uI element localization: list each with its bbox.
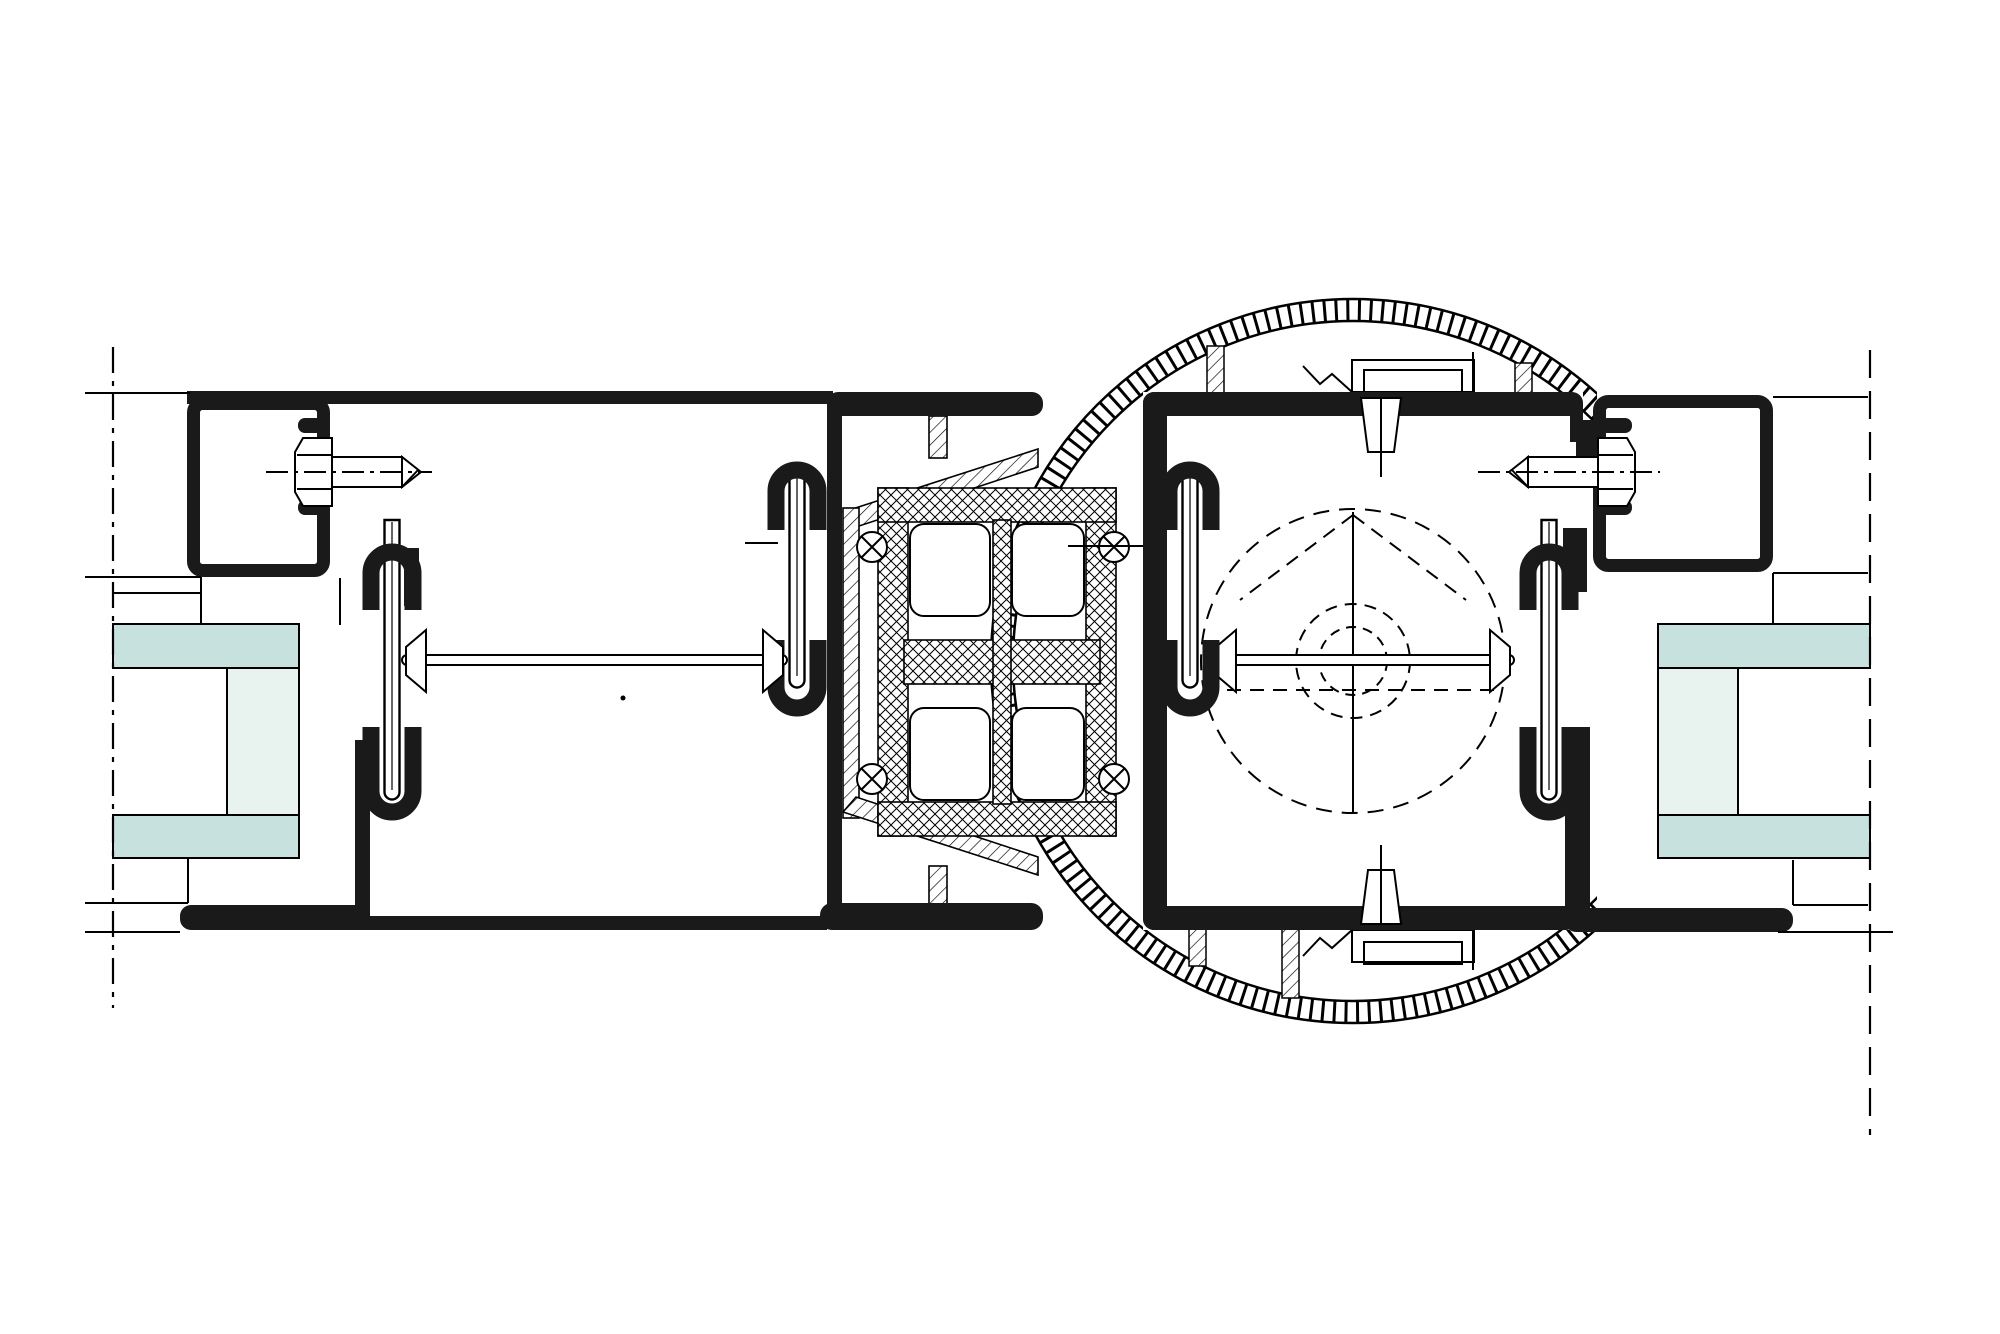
- frame-bottom-bar: [180, 905, 370, 930]
- sash-bottom-bar: [357, 916, 827, 930]
- connector-cell: [1012, 708, 1084, 800]
- glass-edge-spacer: [227, 668, 299, 815]
- stray-dot: [621, 696, 626, 701]
- frame-wall: [1565, 727, 1590, 912]
- sash-bottom-bar: [1143, 906, 1577, 930]
- frame-bottom-bar: [1565, 908, 1793, 932]
- glass-pane-outer: [1658, 624, 1870, 668]
- phillips-screw-icon: [1099, 764, 1129, 794]
- connector-bottom-stub: [929, 866, 947, 908]
- gasket-hook: [1600, 418, 1632, 433]
- connector-bridge-bottom: [878, 802, 1116, 836]
- sash-bottom-corner: [820, 903, 1043, 930]
- glass-edge-spacer: [1658, 668, 1738, 815]
- connector-cell: [910, 524, 990, 616]
- gasket-nub: [1563, 528, 1587, 592]
- connector-top-stub: [929, 416, 947, 458]
- connector-mid-rib: [993, 520, 1011, 804]
- gasket-hook: [298, 418, 330, 433]
- sash-top-bar: [827, 392, 1043, 416]
- drawing-canvas: [0, 0, 2000, 1334]
- section-drawing: [0, 0, 2000, 1334]
- thermal-break-connector: [843, 416, 1116, 908]
- connector-left-wall: [843, 508, 859, 818]
- connector-bridge-top: [878, 488, 1116, 522]
- connector-cell: [910, 708, 990, 800]
- connector-cell: [1012, 524, 1084, 616]
- phillips-screw-icon: [857, 532, 887, 562]
- glass-pane-inner: [1658, 815, 1870, 858]
- sash-right-wall: [827, 404, 842, 906]
- glass-pane-inner: [113, 815, 299, 858]
- phillips-screw-icon: [857, 764, 887, 794]
- glass-pane-outer: [113, 624, 299, 668]
